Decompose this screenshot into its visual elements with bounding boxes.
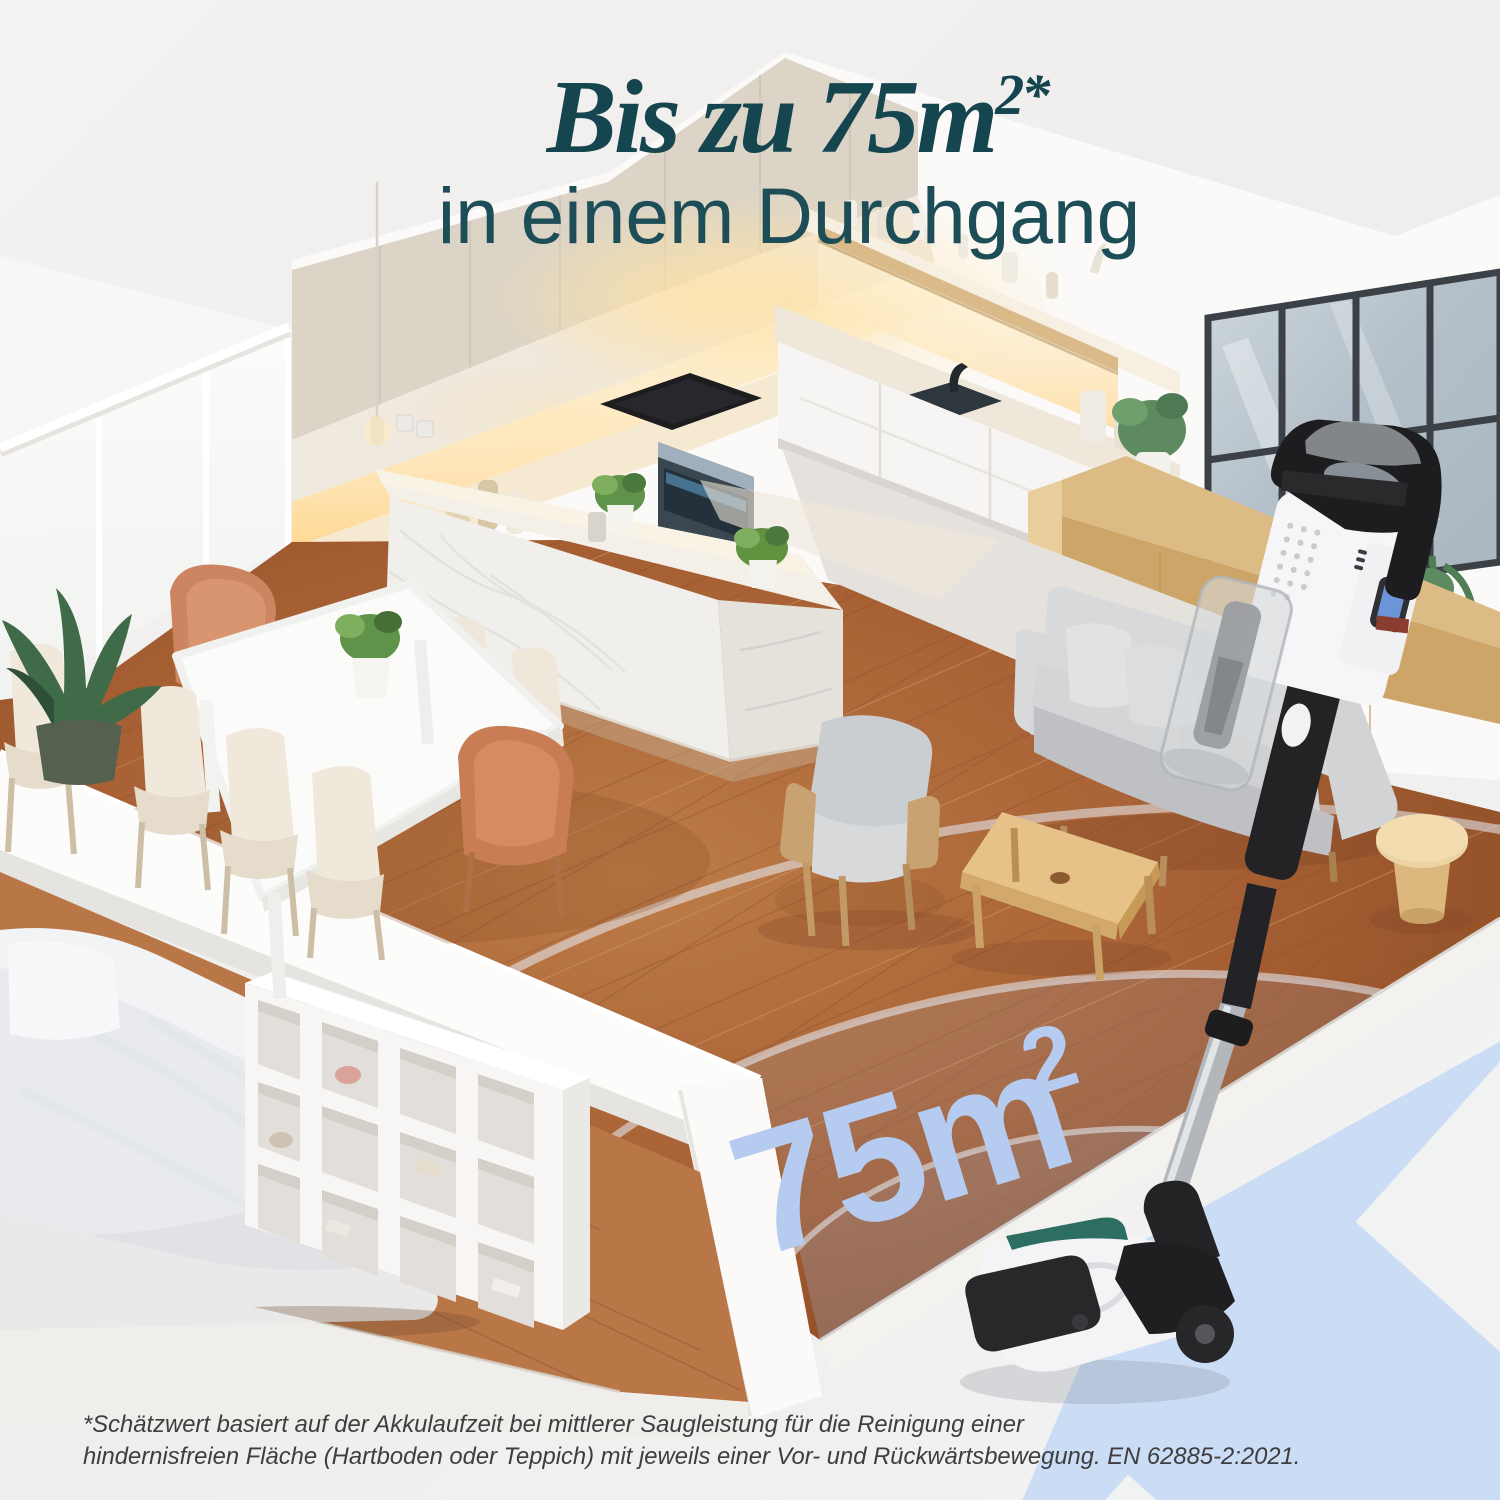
svg-text:in einem Durchgang: in einem Durchgang [438, 172, 1141, 260]
svg-text:hindernisfreien Fläche (Hartbo: hindernisfreien Fläche (Hartboden oder T… [83, 1443, 1300, 1470]
svg-text:Bis zu 75m2*: Bis zu 75m2* [546, 58, 1052, 175]
svg-text:*Schätzwert basiert auf der Ak: *Schätzwert basiert auf der Akkulaufzeit… [83, 1411, 1025, 1438]
